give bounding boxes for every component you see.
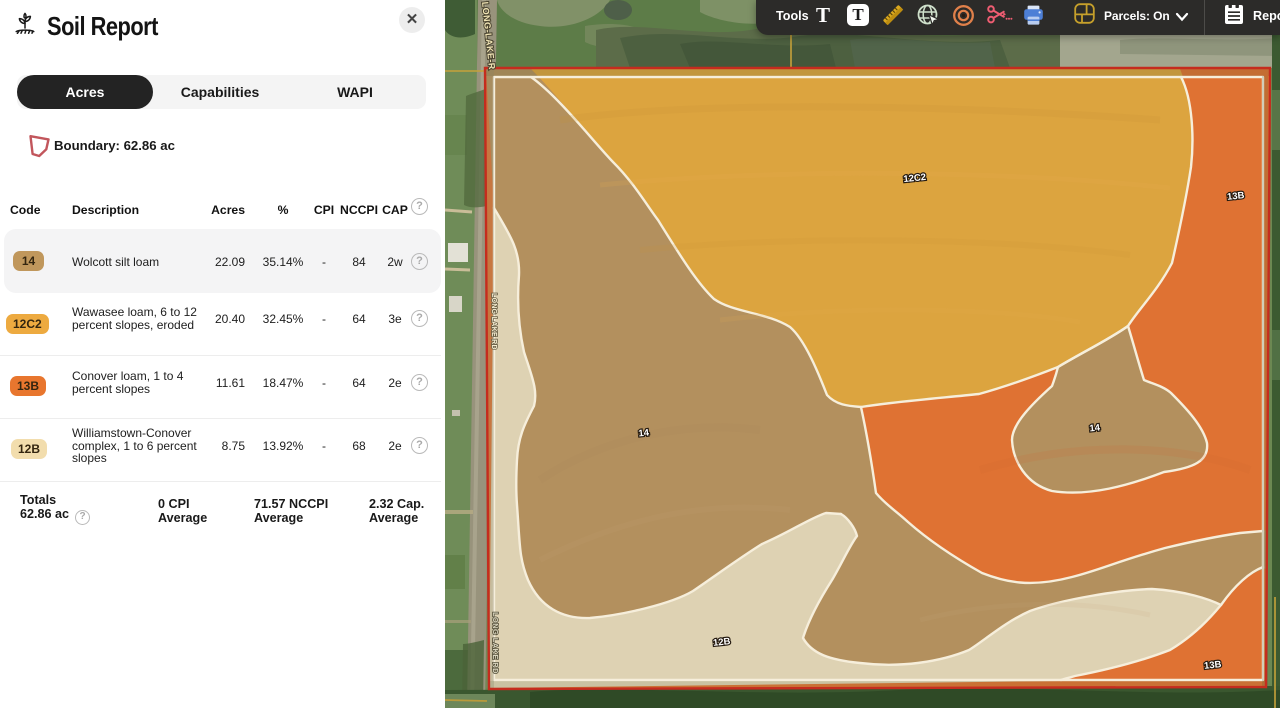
svg-text:LONG LAKE RD: LONG LAKE RD [491, 612, 500, 674]
svg-text:14: 14 [638, 427, 650, 439]
svg-text:13B: 13B [1226, 190, 1245, 203]
svg-text:13B: 13B [1203, 659, 1222, 672]
svg-text:LONG LAKE RD: LONG LAKE RD [490, 293, 497, 350]
svg-text:14: 14 [1089, 422, 1101, 434]
svg-text:12B: 12B [712, 636, 731, 649]
